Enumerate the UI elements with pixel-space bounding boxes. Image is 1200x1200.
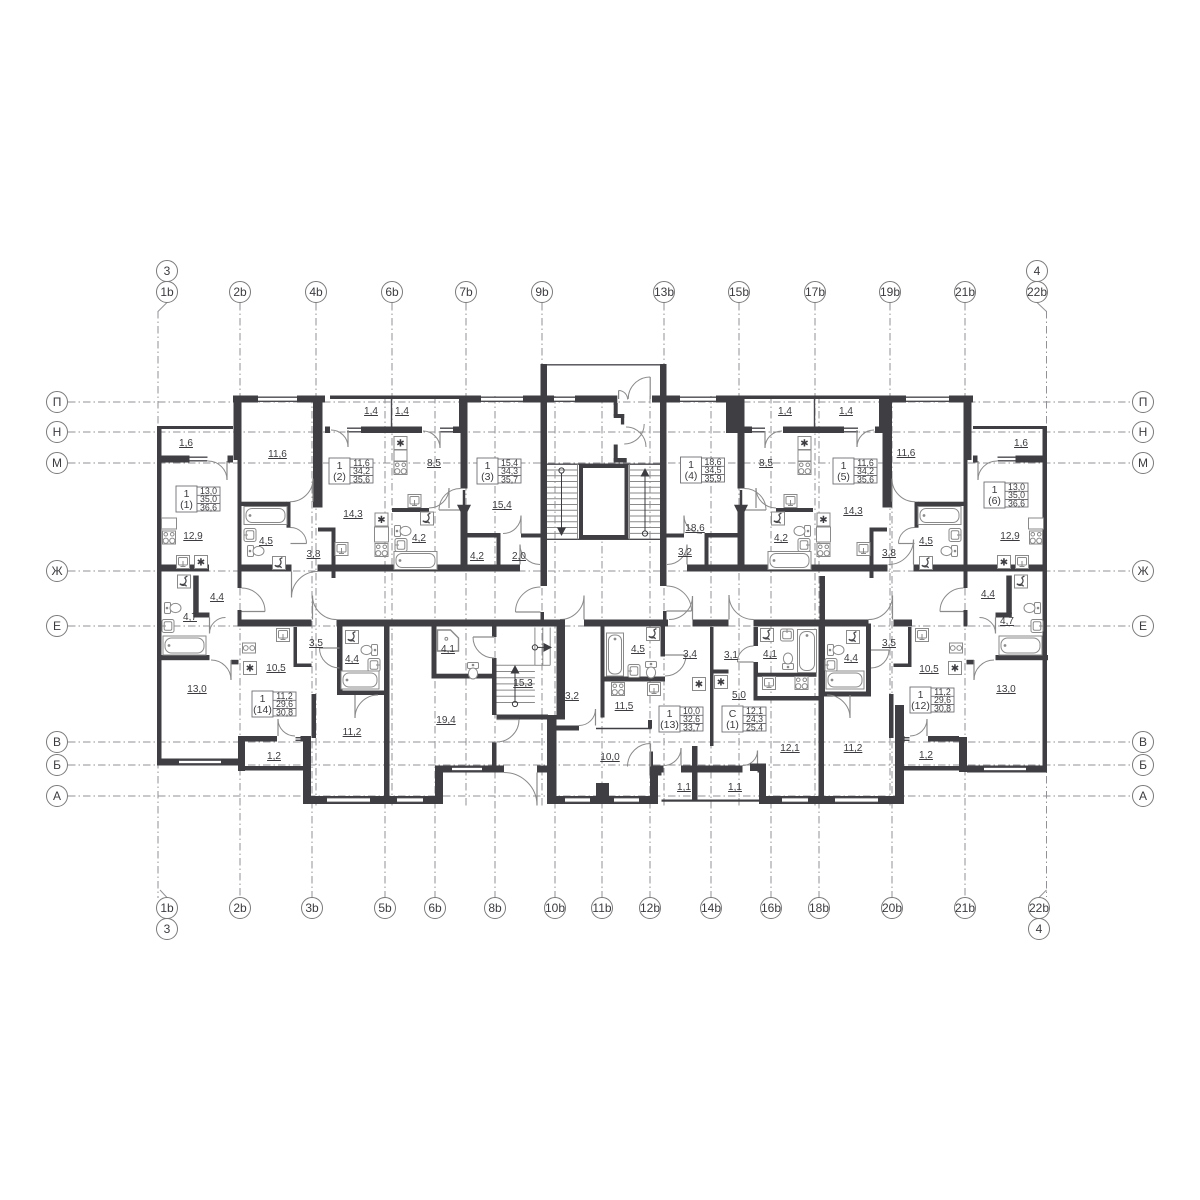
svg-text:3,8: 3,8 — [307, 549, 321, 560]
svg-text:✱: ✱ — [396, 439, 404, 450]
svg-text:36,6: 36,6 — [200, 502, 217, 512]
svg-text:17b: 17b — [805, 285, 825, 299]
svg-text:3,5: 3,5 — [882, 638, 896, 649]
svg-text:4b: 4b — [309, 285, 323, 299]
svg-text:М: М — [1138, 456, 1148, 470]
svg-text:8,5: 8,5 — [759, 458, 773, 469]
svg-text:3,4: 3,4 — [683, 649, 697, 660]
svg-text:4,1: 4,1 — [441, 644, 455, 655]
svg-text:11,6: 11,6 — [268, 449, 287, 460]
svg-text:19b: 19b — [880, 285, 900, 299]
svg-text:4,5: 4,5 — [919, 536, 933, 547]
svg-text:25,4: 25,4 — [746, 722, 763, 732]
svg-text:14,3: 14,3 — [343, 509, 363, 520]
svg-text:1,4: 1,4 — [839, 406, 853, 417]
svg-text:3,1: 3,1 — [724, 650, 738, 661]
svg-text:7b: 7b — [459, 285, 473, 299]
svg-text:✱: ✱ — [717, 678, 725, 689]
svg-text:36,6: 36,6 — [1008, 498, 1025, 508]
svg-text:Е: Е — [53, 619, 61, 633]
svg-text:В: В — [53, 735, 61, 749]
svg-text:3: 3 — [164, 264, 171, 278]
svg-text:11b: 11b — [592, 901, 611, 915]
svg-text:10,5: 10,5 — [266, 663, 286, 674]
svg-text:А: А — [1139, 789, 1147, 803]
svg-text:(4): (4) — [685, 470, 698, 482]
svg-text:Б: Б — [53, 758, 61, 772]
svg-text:2b: 2b — [233, 901, 247, 915]
svg-text:35,9: 35,9 — [704, 473, 721, 483]
svg-text:3,2: 3,2 — [565, 691, 579, 702]
svg-text:10,5: 10,5 — [919, 664, 939, 675]
svg-text:11,2: 11,2 — [343, 727, 362, 738]
svg-text:12,9: 12,9 — [1000, 531, 1020, 542]
svg-text:Ж: Ж — [1137, 564, 1148, 578]
svg-text:(1): (1) — [180, 499, 193, 511]
svg-text:Н: Н — [53, 425, 62, 439]
svg-text:13b: 13b — [654, 285, 674, 299]
svg-text:✱: ✱ — [951, 664, 959, 675]
svg-text:(12): (12) — [911, 700, 930, 712]
svg-text:10,0: 10,0 — [600, 752, 620, 763]
svg-text:19,4: 19,4 — [436, 715, 456, 726]
svg-text:М: М — [52, 456, 62, 470]
svg-text:✱: ✱ — [246, 664, 254, 675]
svg-text:(3): (3) — [481, 471, 494, 483]
svg-text:4: 4 — [1036, 922, 1043, 936]
svg-text:2b: 2b — [233, 285, 247, 299]
svg-text:4,1: 4,1 — [763, 649, 777, 660]
svg-text:✱: ✱ — [1000, 558, 1008, 569]
svg-text:1,6: 1,6 — [179, 438, 193, 449]
svg-text:Ж: Ж — [51, 564, 62, 578]
svg-text:21b: 21b — [955, 901, 975, 915]
svg-text:14,3: 14,3 — [843, 506, 863, 517]
svg-text:1b: 1b — [160, 285, 174, 299]
svg-text:15b: 15b — [729, 285, 749, 299]
svg-text:15,3: 15,3 — [513, 678, 533, 689]
svg-text:1,1: 1,1 — [728, 782, 742, 793]
svg-text:6b: 6b — [385, 285, 399, 299]
svg-text:4,4: 4,4 — [981, 589, 995, 600]
svg-text:4,2: 4,2 — [774, 533, 788, 544]
svg-text:11,2: 11,2 — [844, 743, 863, 754]
svg-text:3b: 3b — [305, 901, 319, 915]
svg-text:1,4: 1,4 — [395, 406, 409, 417]
svg-text:11,6: 11,6 — [897, 448, 916, 459]
svg-text:3,5: 3,5 — [309, 638, 323, 649]
svg-text:22b: 22b — [1029, 901, 1049, 915]
svg-text:4,2: 4,2 — [470, 551, 484, 562]
svg-text:1,1: 1,1 — [677, 782, 691, 793]
svg-text:6b: 6b — [428, 901, 442, 915]
svg-text:4,4: 4,4 — [345, 654, 359, 665]
svg-text:3,2: 3,2 — [678, 547, 692, 558]
svg-text:35,6: 35,6 — [857, 474, 874, 484]
svg-text:35,7: 35,7 — [501, 474, 518, 484]
svg-text:4,4: 4,4 — [210, 592, 224, 603]
svg-text:А: А — [53, 789, 61, 803]
svg-text:✱: ✱ — [377, 515, 385, 526]
svg-text:4,2: 4,2 — [412, 533, 426, 544]
svg-text:✱: ✱ — [197, 558, 205, 569]
svg-text:12,9: 12,9 — [183, 531, 203, 542]
svg-text:4,4: 4,4 — [844, 653, 858, 664]
svg-text:Б: Б — [1139, 758, 1147, 772]
svg-text:13,0: 13,0 — [187, 684, 207, 695]
svg-text:П: П — [1139, 395, 1148, 409]
svg-text:1,2: 1,2 — [919, 750, 933, 761]
svg-text:✱: ✱ — [695, 680, 703, 691]
svg-text:4,5: 4,5 — [631, 644, 645, 655]
svg-text:5b: 5b — [378, 901, 392, 915]
svg-text:4,5: 4,5 — [259, 536, 273, 547]
svg-text:22b: 22b — [1027, 285, 1047, 299]
svg-text:16b: 16b — [761, 901, 781, 915]
svg-text:Е: Е — [1139, 619, 1147, 633]
svg-text:20b: 20b — [882, 901, 902, 915]
svg-text:3: 3 — [164, 922, 171, 936]
svg-text:12,1: 12,1 — [780, 743, 800, 754]
svg-text:8,5: 8,5 — [427, 458, 441, 469]
svg-text:Н: Н — [1139, 425, 1148, 439]
svg-text:(6): (6) — [988, 495, 1001, 507]
svg-text:✱: ✱ — [819, 515, 827, 526]
svg-text:1,4: 1,4 — [364, 406, 378, 417]
svg-text:33,7: 33,7 — [683, 722, 700, 732]
svg-text:9b: 9b — [535, 285, 549, 299]
svg-text:10b: 10b — [545, 901, 565, 915]
svg-text:(13): (13) — [660, 719, 679, 731]
svg-text:3,8: 3,8 — [882, 548, 896, 559]
svg-text:1b: 1b — [160, 901, 174, 915]
svg-text:(2): (2) — [333, 471, 346, 483]
svg-text:✱: ✱ — [800, 439, 808, 450]
svg-text:13,0: 13,0 — [996, 684, 1016, 695]
svg-text:30,8: 30,8 — [276, 707, 293, 717]
svg-text:21b: 21b — [955, 285, 975, 299]
svg-text:12b: 12b — [640, 901, 660, 915]
svg-text:1,6: 1,6 — [1014, 438, 1028, 449]
svg-text:14b: 14b — [701, 901, 721, 915]
svg-text:18,6: 18,6 — [685, 523, 705, 534]
svg-text:15,4: 15,4 — [492, 500, 512, 511]
svg-text:18b: 18b — [809, 901, 829, 915]
svg-text:4,7: 4,7 — [1000, 616, 1014, 627]
svg-text:(14): (14) — [253, 704, 272, 716]
svg-text:П: П — [53, 395, 62, 409]
svg-text:11,5: 11,5 — [615, 701, 634, 712]
svg-text:(1): (1) — [726, 719, 739, 731]
svg-text:1,2: 1,2 — [267, 751, 281, 762]
svg-text:В: В — [1139, 735, 1147, 749]
svg-text:2,0: 2,0 — [512, 551, 526, 562]
svg-text:35,6: 35,6 — [353, 474, 370, 484]
svg-text:1,4: 1,4 — [778, 406, 792, 417]
svg-text:4: 4 — [1034, 264, 1041, 278]
svg-text:30,8: 30,8 — [934, 703, 951, 713]
svg-text:8b: 8b — [488, 901, 502, 915]
svg-text:5,0: 5,0 — [732, 690, 746, 701]
svg-text:(5): (5) — [837, 471, 850, 483]
svg-text:4,7: 4,7 — [183, 612, 197, 623]
